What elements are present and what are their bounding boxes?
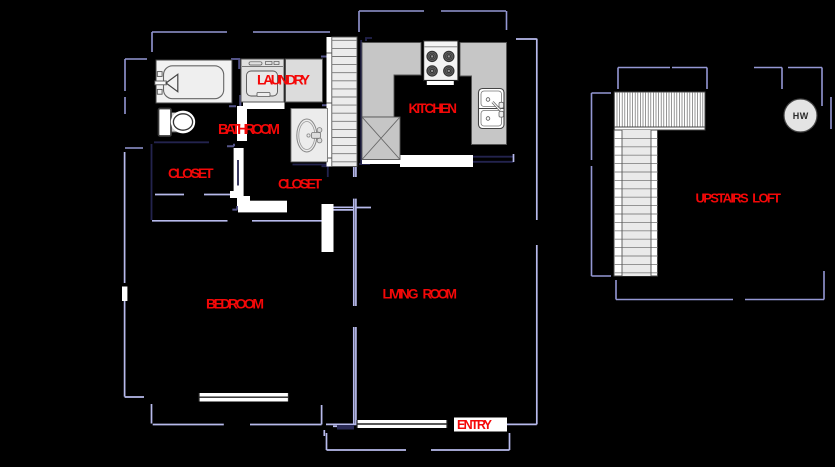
svg-text:ROOM: ROOM — [423, 286, 458, 301]
svg-text:BATHROOM: BATHROOM — [218, 122, 280, 138]
svg-text:LOFT: LOFT — [752, 191, 781, 206]
svg-text:HW: HW — [793, 111, 809, 121]
svg-text:CLOSET: CLOSET — [168, 165, 214, 181]
svg-text:BEDROOM: BEDROOM — [206, 296, 264, 312]
svg-text:UPSTAIRS: UPSTAIRS — [696, 191, 750, 206]
svg-text:KITCHEN: KITCHEN — [409, 101, 458, 116]
svg-text:ENTRY: ENTRY — [457, 418, 493, 432]
svg-text:LAUNDRY: LAUNDRY — [257, 72, 311, 88]
svg-text:CLOSET: CLOSET — [278, 175, 322, 191]
svg-text:LIVING: LIVING — [383, 286, 419, 301]
